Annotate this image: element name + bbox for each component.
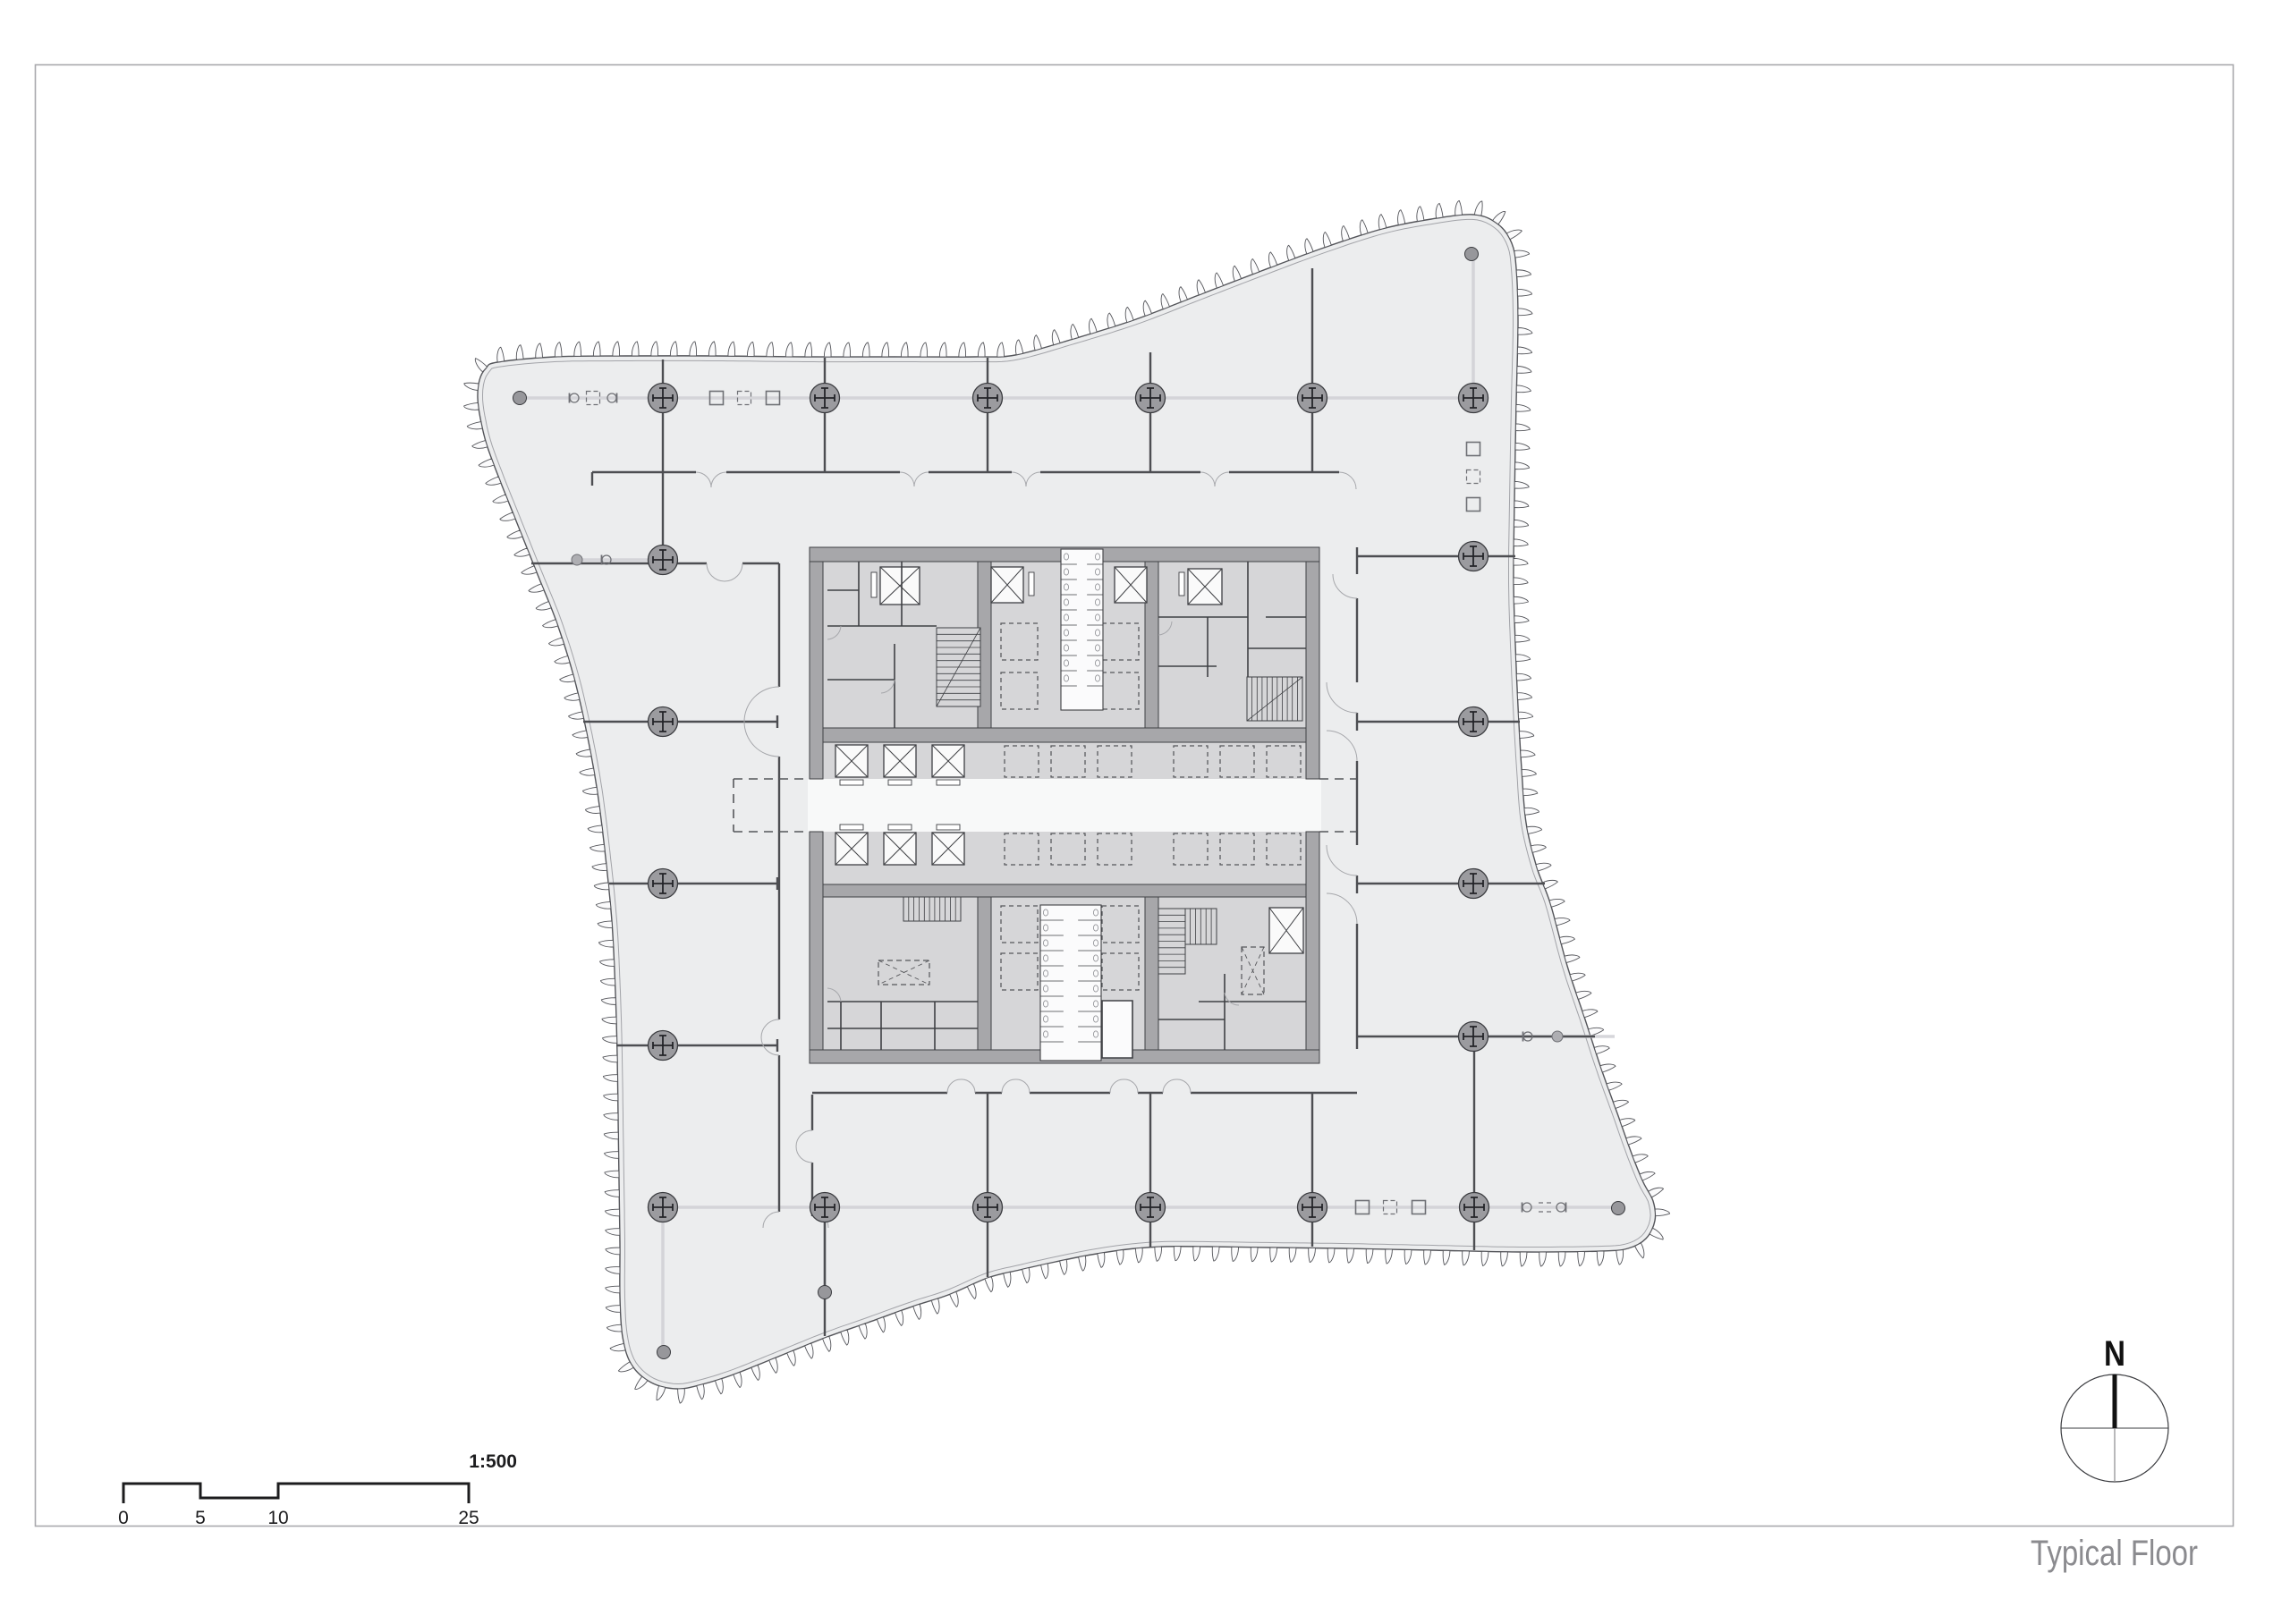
svg-text:5: 5 [195,1508,206,1528]
svg-text:25: 25 [458,1508,479,1528]
svg-text:1:500: 1:500 [469,1451,517,1472]
svg-text:N: N [2104,1334,2125,1374]
svg-text:10: 10 [267,1508,288,1528]
svg-text:Typical Floor: Typical Floor [2031,1534,2198,1573]
svg-text:0: 0 [118,1508,129,1528]
